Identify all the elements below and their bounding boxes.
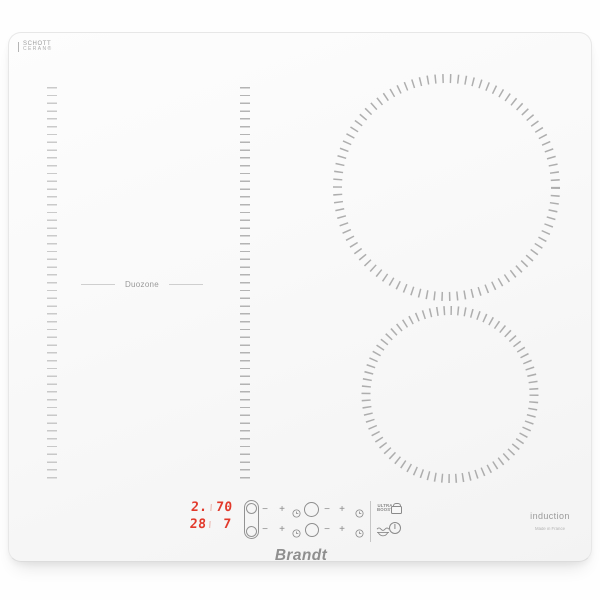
clock-icon xyxy=(355,509,364,518)
clock-icon xyxy=(355,529,364,538)
led-row-1: 2. 70 xyxy=(183,499,233,516)
led-power-value-1: 2. xyxy=(183,500,208,515)
led-timer-value-1: 70 xyxy=(214,500,233,515)
led-power-value-2: 28 xyxy=(182,517,207,532)
made-in-france-label: Made in France xyxy=(521,527,579,531)
clock-icon xyxy=(292,509,301,518)
timer-button-row2-right[interactable] xyxy=(355,525,364,543)
display-separator xyxy=(210,504,211,511)
cooking-zone-rings xyxy=(9,33,593,563)
timer-button-row2-left[interactable] xyxy=(292,525,301,543)
timer-button-row1-left[interactable] xyxy=(292,505,301,523)
right-top-zone-selector-icon[interactable] xyxy=(304,502,319,517)
plus-button-row2-right[interactable]: + xyxy=(336,523,348,537)
dual-zone-bottom-circle xyxy=(246,526,257,537)
timer-button-row1-right[interactable] xyxy=(355,505,364,523)
right-top-zone-ring xyxy=(338,79,556,297)
plus-button-row1-left[interactable]: + xyxy=(276,503,288,517)
induction-branding: induction Made in France xyxy=(510,511,590,533)
lock-button[interactable] xyxy=(391,503,400,514)
plus-button-row1-right[interactable]: + xyxy=(336,503,348,517)
display-separator xyxy=(209,521,210,528)
led-row-2: 28 7 xyxy=(182,516,232,533)
dual-zone-top-circle xyxy=(246,503,257,514)
led-display: 2. 70 28 7 xyxy=(182,499,233,533)
right-bottom-zone-selector-icon[interactable] xyxy=(305,523,319,537)
control-divider xyxy=(370,501,371,542)
minus-button-row1-right[interactable]: − xyxy=(321,503,333,517)
clock-icon xyxy=(292,529,301,538)
induction-hob-surface: SCHOTT CERAN® Duozone 2. 70 28 xyxy=(8,32,592,562)
right-bottom-zone-ring xyxy=(366,311,534,479)
minus-button-row1-left[interactable]: − xyxy=(259,503,271,517)
minus-button-row2-left[interactable]: − xyxy=(259,523,271,537)
induction-label: induction xyxy=(510,511,590,521)
product-photo: SCHOTT CERAN® Duozone 2. 70 28 xyxy=(0,0,600,600)
minus-button-row2-right[interactable]: − xyxy=(321,523,333,537)
plus-button-row2-left[interactable]: + xyxy=(276,523,288,537)
led-timer-value-2: 7 xyxy=(213,517,232,532)
dual-zone-selector-icon[interactable] xyxy=(244,500,259,539)
power-button[interactable] xyxy=(389,522,401,534)
brandt-logo: Brandt xyxy=(241,547,361,565)
